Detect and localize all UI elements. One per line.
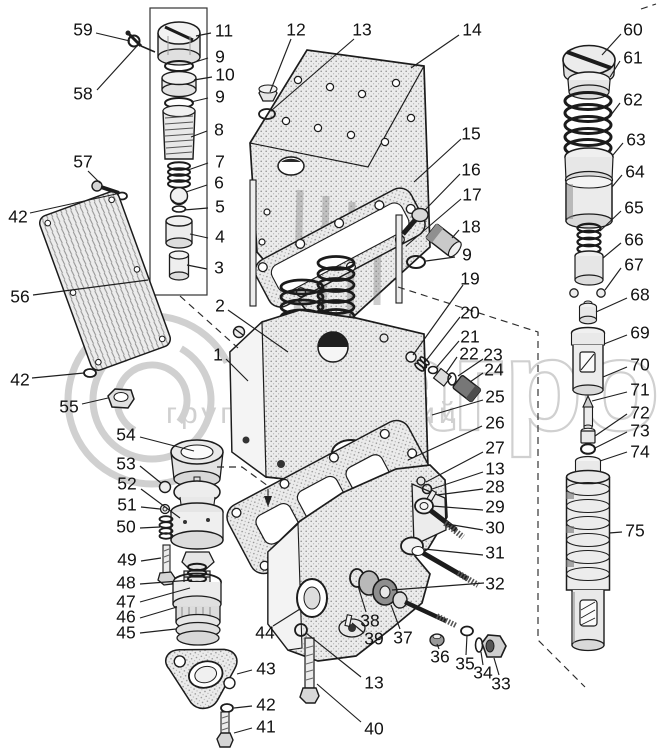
callout-9: 9 [215,48,225,66]
callout-62: 62 [623,91,642,109]
callout-42: 42 [8,208,27,226]
callout-15: 15 [461,125,480,143]
callout-12: 12 [286,21,305,39]
callout-8: 8 [214,121,224,139]
callout-66: 66 [624,231,643,249]
part-nut-10 [162,72,196,97]
callout-31: 31 [485,544,504,562]
leader-line-58 [97,46,137,90]
callout-55: 55 [59,398,78,416]
leader-line-51 [141,507,160,509]
callout-73: 73 [630,422,649,440]
callout-3: 3 [214,259,224,277]
leader-line-3 [187,265,207,269]
callout-72: 72 [630,404,649,422]
part-adjuster-screw-8 [163,106,195,160]
callout-34: 34 [473,664,492,682]
part-washer-42b [84,369,96,377]
callout-37: 37 [393,629,412,647]
callout-9: 9 [215,88,225,106]
callout-65: 65 [624,199,643,217]
callout-32: 32 [485,575,504,593]
part-nut-12 [259,85,277,101]
leader-line-18 [452,230,459,238]
callout-14: 14 [462,21,481,39]
leader-line-9 [426,257,455,261]
leader-line-63 [613,143,623,155]
callout-40: 40 [364,720,383,738]
part-stud-2 [250,180,256,306]
callout-5: 5 [215,198,225,216]
callout-38: 38 [360,612,379,630]
callout-41: 41 [256,718,275,736]
callout-39: 39 [364,630,383,648]
callout-28: 28 [485,478,504,496]
part-ball-53 [160,482,171,493]
leader-line-45 [140,629,176,633]
part-pilot-valve-column [158,440,223,645]
callout-69: 69 [630,324,649,342]
callout-67: 67 [624,256,643,274]
callout-11: 11 [215,22,233,40]
part-bolt-27 [417,477,425,485]
leader-line-66 [603,243,621,258]
callout-70: 70 [630,356,649,374]
callout-13: 13 [352,21,371,39]
callout-71: 71 [630,381,649,399]
callout-68: 68 [630,286,649,304]
callout-35: 35 [455,655,474,673]
callout-58: 58 [73,85,92,103]
callout-16: 16 [461,161,480,179]
callout-48: 48 [116,574,135,592]
leader-line-67 [605,268,621,290]
callout-53: 53 [116,455,135,473]
callout-6: 6 [214,174,224,192]
leader-line-49 [141,558,161,561]
leader-line-14 [411,35,459,68]
leader-line-64 [612,175,622,187]
callout-42: 42 [10,371,29,389]
part-stud-17 [396,215,402,303]
callout-18: 18 [461,218,480,236]
leader-line-7 [188,163,208,170]
part-washer-5 [173,206,186,212]
leader-line-10 [194,77,212,80]
leader-line-68 [596,298,627,312]
callout-17: 17 [462,186,481,204]
leader-line-59 [96,33,130,41]
callout-36: 36 [430,648,449,666]
callout-20: 20 [460,304,479,322]
callout-24: 24 [484,361,503,379]
part-bolt-57 [92,181,119,193]
callout-74: 74 [630,443,649,461]
part-ring-35 [461,627,473,636]
callout-27: 27 [485,439,504,457]
part-ball-67b [597,289,605,297]
callout-26: 26 [485,414,504,432]
part-seat-3 [170,251,189,280]
callout-4: 4 [215,228,225,246]
part-flange-43 [163,636,246,715]
callout-56: 56 [10,288,29,306]
callout-10: 10 [215,66,234,84]
part-nut-33 [482,635,506,657]
part-side-plate-group [37,181,172,408]
leader-line-62 [611,103,620,115]
callout-33: 33 [491,675,510,693]
callout-1: 1 [213,346,223,364]
part-plug-18 [426,224,464,259]
part-washer-42c [221,704,233,712]
leader-line-9 [191,98,208,102]
part-relief-valve-stack [126,22,201,280]
leader-line-42 [234,706,252,708]
callout-25: 25 [485,388,504,406]
part-bolt-41 [217,712,233,747]
callout-59: 59 [73,21,92,39]
dashed-line-4 [641,4,656,9]
part-washer-34 [476,638,483,652]
callout-22: 22 [459,345,478,363]
callout-60: 60 [623,21,642,39]
leader-line-40 [317,684,361,722]
callout-64: 64 [625,163,644,181]
callout-54: 54 [116,426,135,444]
callout-30: 30 [485,519,504,537]
part-bolt-49 [158,545,175,585]
parts-diagram: елагро группа компаний [0,0,660,750]
callout-51: 51 [117,496,136,514]
part-guide-4 [166,216,192,248]
leader-line-42 [32,373,84,378]
callout-45: 45 [116,624,135,642]
callout-57: 57 [73,153,92,171]
callout-63: 63 [626,131,645,149]
callout-42: 42 [256,696,275,714]
leader-line-4 [190,234,208,238]
leader-line-35 [466,635,467,655]
callout-19: 19 [460,270,479,288]
part-cover-plate-56 [37,190,172,373]
callout-75: 75 [625,522,644,540]
diagram-canvas: елагро группа компаний [0,0,660,750]
callout-49: 49 [117,551,136,569]
leader-line-5 [184,208,208,210]
callout-50: 50 [116,518,135,536]
callout-7: 7 [215,153,225,171]
part-nut-55 [108,389,134,408]
callout-43: 43 [256,660,275,678]
leader-line-31 [424,549,483,555]
callout-52: 52 [117,475,136,493]
callout-61: 61 [623,49,642,67]
part-spring-7 [168,162,190,188]
leader-line-46 [140,607,177,618]
part-ball-67a [570,289,578,297]
part-spring-62 [565,93,611,157]
callout-13: 13 [364,674,383,692]
part-main-spool-75 [566,471,610,651]
callout-29: 29 [485,498,504,516]
callout-13: 13 [485,460,504,478]
leader-line-75 [609,532,622,533]
leader-line-50 [140,527,160,528]
callout-2: 2 [215,297,225,315]
callout-9: 9 [462,246,472,264]
callout-44: 44 [255,624,274,642]
leader-line-41 [234,728,252,733]
leader-line-43 [237,670,252,674]
